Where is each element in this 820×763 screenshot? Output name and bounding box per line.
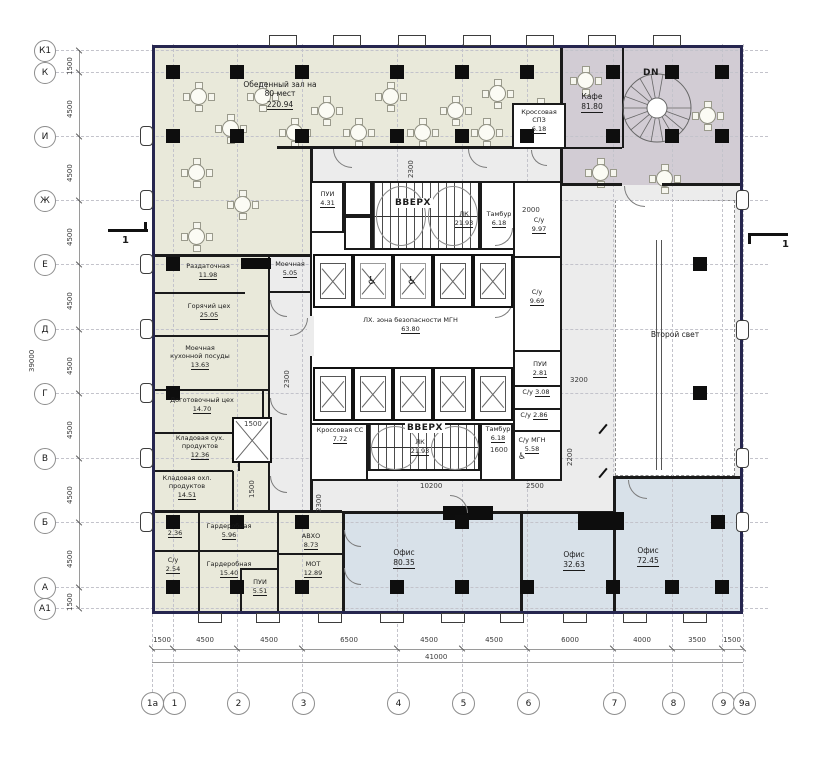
dim-2300-top: 2300 (407, 160, 415, 178)
structural-column (455, 580, 469, 594)
room-label-su236: 2.36 (158, 528, 192, 538)
dim-row-1: 4500 (66, 100, 74, 118)
wall (232, 471, 234, 511)
wall (198, 550, 278, 552)
elevator-car (400, 376, 426, 412)
dim-total-39000: 39000 (28, 350, 36, 372)
wall-pilaster-right (736, 512, 749, 532)
room-label-cold: Кладовая охл. продуктов 14.51 (156, 474, 218, 500)
structural-column (520, 580, 534, 594)
structural-column (166, 515, 180, 529)
dim-col-0: 1500 (149, 636, 175, 644)
grid-bubble-row-k: К (34, 62, 56, 84)
grid-bubble-row-v: В (34, 448, 56, 470)
roof-vent-top (463, 35, 491, 46)
dim-col-3: 6500 (336, 636, 362, 644)
room-label-hot: Горячий цех 25.05 (178, 302, 240, 320)
room-label-su254: С/у 2.54 (156, 556, 190, 574)
structural-column (455, 515, 469, 529)
roof-vent-top (398, 35, 426, 46)
section-marker-label-left: 1 (122, 235, 129, 246)
dim-col-8: 3500 (684, 636, 710, 644)
floor-plan-canvas: Обеденный зал на 80 мест 220.94 Кафе 81.… (0, 0, 820, 763)
wall-pilaster-left (140, 448, 153, 468)
roof-vent-top (269, 35, 297, 46)
wall-pilaster-left (140, 512, 153, 532)
dim-row-6: 4500 (66, 421, 74, 439)
wheelchair-icon: ♿ (367, 274, 377, 287)
room-label-office3: Офис 72.45 (622, 546, 674, 567)
grid-bubble-col-9: 9 (712, 692, 735, 715)
grid-line-vertical (743, 44, 744, 692)
room-label-ward2: Гардеробная 15.40 (200, 560, 258, 578)
grid-bubble-row-g: Г (34, 383, 56, 405)
dim-col-9: 1500 (719, 636, 745, 644)
wall (277, 553, 342, 555)
structural-column (166, 65, 180, 79)
vent-bottom (500, 613, 524, 623)
room-label-mot: МОТ 12.89 (290, 560, 336, 578)
vent-bottom (318, 613, 342, 623)
vent-bottom (380, 613, 404, 623)
structural-column (693, 257, 707, 271)
dim-total-41000: 41000 (425, 653, 447, 661)
dim-row-9: 1500 (66, 593, 74, 611)
room-label-tambur-top: Тамбур 6.18 (481, 210, 517, 228)
wall-pilaster-right (736, 190, 749, 210)
wall-pilaster-right (736, 320, 749, 340)
elevator-car (480, 376, 506, 412)
room-label-dry: Кладовая сух. продуктов 12.36 (170, 434, 230, 460)
grid-bubble-col-8: 8 (662, 692, 685, 715)
stair-arc (376, 186, 426, 246)
dim-col-2: 4500 (256, 636, 282, 644)
structural-column (715, 129, 729, 143)
core-storage-b (344, 216, 372, 250)
structural-column (390, 129, 404, 143)
dim-2300-bot: 2300 (315, 494, 323, 512)
room-label-second-light: Второй свет (642, 330, 708, 339)
wall-pilaster-right (736, 448, 749, 468)
dim-2300-left: 2300 (283, 370, 291, 388)
wall (513, 256, 562, 258)
structural-column (166, 129, 180, 143)
grid-bubble-col-2: 2 (227, 692, 250, 715)
wall (513, 350, 562, 352)
room-label-dogot: Доготовочный цех 14.70 (166, 396, 238, 414)
structural-column (455, 129, 469, 143)
dim-row-3: 4500 (66, 228, 74, 246)
stair-up-label-top: ВВЕРХ (393, 198, 433, 208)
wheelchair-icon-sumgn: ♿ (518, 452, 526, 462)
grid-bubble-col-9a: 9а (733, 692, 756, 715)
wall (342, 511, 345, 611)
grid-bubble-col-7: 7 (603, 692, 626, 715)
section-marker-bar-left (108, 229, 148, 232)
room-label-pui431: ПУИ 4.31 (311, 190, 344, 208)
dimline-bottom (152, 649, 743, 650)
wall-pilaster-left (140, 383, 153, 403)
dim-3200: 3200 (570, 376, 588, 384)
room-label-avho: АВХО 8.73 (286, 532, 336, 550)
section-marker-tick-left (144, 222, 147, 230)
room-label-pui551: ПУИ 5.51 (242, 578, 278, 596)
grid-bubble-row-a1: А1 (34, 598, 56, 620)
structural-column (390, 580, 404, 594)
grid-bubble-row-zh: Ж (34, 190, 56, 212)
section-marker-label-right: 1 (782, 239, 789, 250)
wall (155, 550, 200, 552)
grid-bubble-col-1a: 1а (141, 692, 164, 715)
grid-bubble-row-e: Е (34, 254, 56, 276)
structural-column (711, 515, 725, 529)
room-label-su308: С/у 3.08 (517, 387, 555, 397)
dimline-bottom-total (152, 662, 743, 663)
wall (155, 335, 268, 337)
vent-bottom (198, 613, 222, 623)
room-label-cross-cc: Кроссовая СС 7.72 (314, 426, 366, 444)
room-label-moechnaya: Моечная 5.05 (270, 260, 310, 278)
grid-bubble-row-b: Б (34, 512, 56, 534)
elevator-car (440, 263, 466, 299)
dim-2500: 2500 (526, 482, 544, 490)
room-label-dining: Обеденный зал на 80 мест 220.94 (238, 80, 322, 110)
elevator-car (360, 376, 386, 412)
structural-column (295, 515, 309, 529)
structural-column (166, 580, 180, 594)
wall (155, 510, 342, 513)
dim-2200: 2200 (566, 448, 574, 466)
dim-col-1: 4500 (192, 636, 218, 644)
structural-column (390, 65, 404, 79)
room-label-su969: С/у 9.69 (518, 288, 556, 306)
grid-bubble-col-1: 1 (163, 692, 186, 715)
elevator-car (320, 263, 346, 299)
vent-bottom (683, 613, 707, 623)
room-label-lk-top: ЛК 21.93 (447, 210, 481, 228)
wall (513, 430, 562, 432)
entrance-mat (578, 512, 624, 530)
wall (613, 476, 740, 479)
structural-column (520, 65, 534, 79)
wall (155, 292, 245, 294)
structural-column (606, 580, 620, 594)
grid-bubble-col-5: 5 (452, 692, 475, 715)
dim-1500-a: 1500 (244, 420, 262, 428)
grid-bubble-col-3: 3 (292, 692, 315, 715)
room-label-wash: Моечная кухонной посуды 13.63 (170, 344, 230, 370)
kitchen-fixture (241, 258, 271, 269)
structural-column (606, 129, 620, 143)
room-label-cafe: Кафе 81.80 (572, 92, 612, 113)
dim-row-2: 4500 (66, 164, 74, 182)
section-marker-bar-right (748, 233, 788, 236)
vent-bottom (256, 613, 280, 623)
wall-pilaster-left (140, 190, 153, 210)
grid-bubble-col-6: 6 (517, 692, 540, 715)
room-label-pui281: ПУИ 2.81 (521, 360, 559, 378)
vent-bottom (441, 613, 465, 623)
structural-column (230, 65, 244, 79)
dim-col-4: 4500 (416, 636, 442, 644)
elevator-car (320, 376, 346, 412)
grid-bubble-row-i: И (34, 126, 56, 148)
dim-col-6: 6000 (557, 636, 583, 644)
core-storage-a (344, 181, 372, 216)
roof-vent-top (588, 35, 616, 46)
grid-bubble-row-a: А (34, 577, 56, 599)
structural-column (295, 129, 309, 143)
wall (520, 511, 523, 611)
structural-column (665, 129, 679, 143)
elevator-car (440, 376, 466, 412)
grid-bubble-col-4: 4 (387, 692, 410, 715)
structural-column (665, 580, 679, 594)
structural-column (295, 580, 309, 594)
wheelchair-icon: ♿ (407, 274, 417, 287)
room-label-office1: Офис 80.35 (378, 548, 430, 569)
grid-bubble-row-d: Д (34, 319, 56, 341)
dim-row-4: 4500 (66, 292, 74, 310)
structural-column (715, 580, 729, 594)
structural-column (715, 65, 729, 79)
room-label-tambur-bot: Тамбур 6.18 (480, 425, 516, 443)
dim-row-5: 4500 (66, 357, 74, 375)
dim-row-8: 4500 (66, 550, 74, 568)
room-label-razdat: Раздаточная 11.98 (172, 262, 244, 280)
structural-column (295, 65, 309, 79)
wall-pilaster-left (140, 254, 153, 274)
dim-row-0: 1500 (66, 57, 74, 75)
dim-col-7: 4000 (629, 636, 655, 644)
wall (310, 147, 313, 183)
roof-vent-top (526, 35, 554, 46)
wall (268, 291, 312, 293)
room-label-su997: С/у 9.97 (520, 216, 558, 234)
wall (662, 183, 740, 186)
structural-column (606, 65, 620, 79)
wall (310, 479, 313, 513)
lobby-door-gap (307, 316, 314, 356)
dim-row-7: 4500 (66, 486, 74, 504)
dim-col-5: 4500 (481, 636, 507, 644)
elevator-car (480, 263, 506, 299)
wall-pilaster-left (140, 126, 153, 146)
roof-vent-top (333, 35, 361, 46)
dim-10200: 10200 (420, 482, 442, 490)
stair-up-label-bottom: ВВЕРХ (405, 423, 445, 433)
section-marker-tick-right (748, 236, 751, 244)
roof-vent-top (653, 35, 681, 46)
grid-bubble-row-k1: К1 (34, 40, 56, 62)
spiral-down-label: DN (641, 68, 661, 78)
wall (560, 183, 622, 186)
wall-pilaster-left (140, 319, 153, 339)
wall (155, 470, 233, 472)
structural-column (230, 129, 244, 143)
room-label-ward1: Гардеробная 5.96 (200, 522, 258, 540)
dim-1500-b: 1500 (248, 480, 256, 498)
structural-column (665, 65, 679, 79)
structural-column (693, 386, 707, 400)
room-label-su286: С/у 2.86 (515, 410, 553, 420)
room-label-lobby: ЛХ. зона безопасности МГН 63.80 (358, 316, 463, 334)
dim-1600: 1600 (490, 446, 508, 454)
structural-column (455, 65, 469, 79)
vent-bottom (623, 613, 647, 623)
room-label-office2: Офис 32.63 (548, 550, 600, 571)
wall (342, 511, 520, 514)
room-label-lk-bot: ЛК 21.93 (398, 438, 442, 456)
room-label-cross-sp3: Кроссовая СПЗ 6.18 (514, 108, 564, 134)
vent-bottom (563, 613, 587, 623)
dim-2000: 2000 (522, 206, 540, 214)
